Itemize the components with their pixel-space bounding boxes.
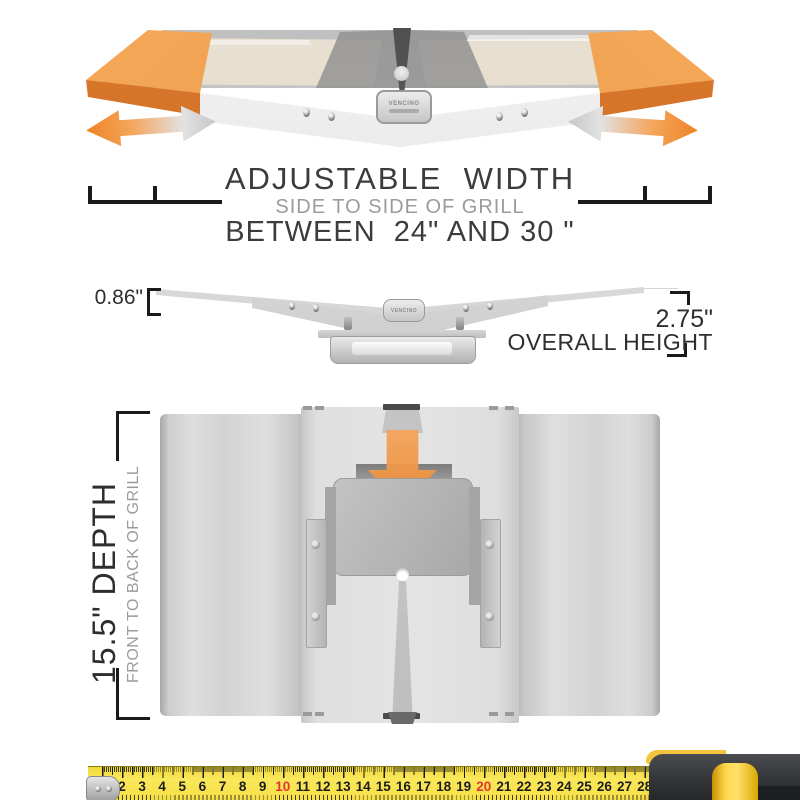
bottom-tab [489,712,498,716]
tape-housing-grip [712,763,758,800]
ruler-number: 11 [296,779,310,794]
ruler-number: 10 [275,779,290,794]
top-tab [303,406,312,410]
rail-plate-right [480,519,501,648]
ruler-number: 18 [436,779,451,794]
ruler-number: 19 [456,779,471,794]
panel-right [518,414,660,716]
screw-icon [485,612,494,621]
rail-bar-right [469,487,480,605]
ruler-number: 17 [416,779,431,794]
bottom-tab [505,712,514,716]
ruler-number: 24 [557,779,572,794]
depth-sublabel: FRONT TO BACK OF GRILL [125,464,143,684]
ruler-number: 26 [597,779,612,794]
product-infographic: VENCINO ADJUSTABLE WIDTH SIDE TO SIDE OF… [0,0,800,800]
ruler-number: 20 [476,779,491,794]
ruler-number: 14 [356,779,371,794]
screw-icon [311,540,320,549]
top-tab-center [383,404,420,410]
ruler-number: 5 [179,779,187,794]
ruler-number: 21 [496,779,511,794]
ruler-number: 7 [219,779,227,794]
ruler-number: 6 [199,779,207,794]
bottom-tab [315,712,324,716]
tape-housing-band [758,786,800,800]
ruler-number: 13 [336,779,351,794]
screw-icon [311,612,320,621]
top-tab [315,406,324,410]
bottom-tab [303,712,312,716]
screw-icon [485,540,494,549]
ruler-number: 16 [396,779,411,794]
ruler-number: 15 [376,779,391,794]
pivot-hole [396,568,409,581]
top-tab [489,406,498,410]
rivet-icon [95,786,101,792]
tape-end-hook [86,776,120,800]
ruler-number: 9 [259,779,267,794]
ruler-number: 27 [617,779,632,794]
tape-ticks-mm [102,767,702,772]
ruler-number: 4 [158,779,166,794]
ruler-number: 12 [315,779,330,794]
ruler-number: 8 [239,779,247,794]
ruler-number: 3 [138,779,146,794]
tape-ticks-bottom [102,795,702,800]
rivet-icon [106,786,112,792]
ruler-number: 22 [516,779,531,794]
depth-label: 15.5" DEPTH [86,478,123,688]
bracket-box [333,478,473,576]
ruler-number: 25 [577,779,592,794]
ruler-number: 23 [537,779,552,794]
panel-left [160,414,302,716]
rail-plate-left [306,519,327,648]
top-tab [505,406,514,410]
